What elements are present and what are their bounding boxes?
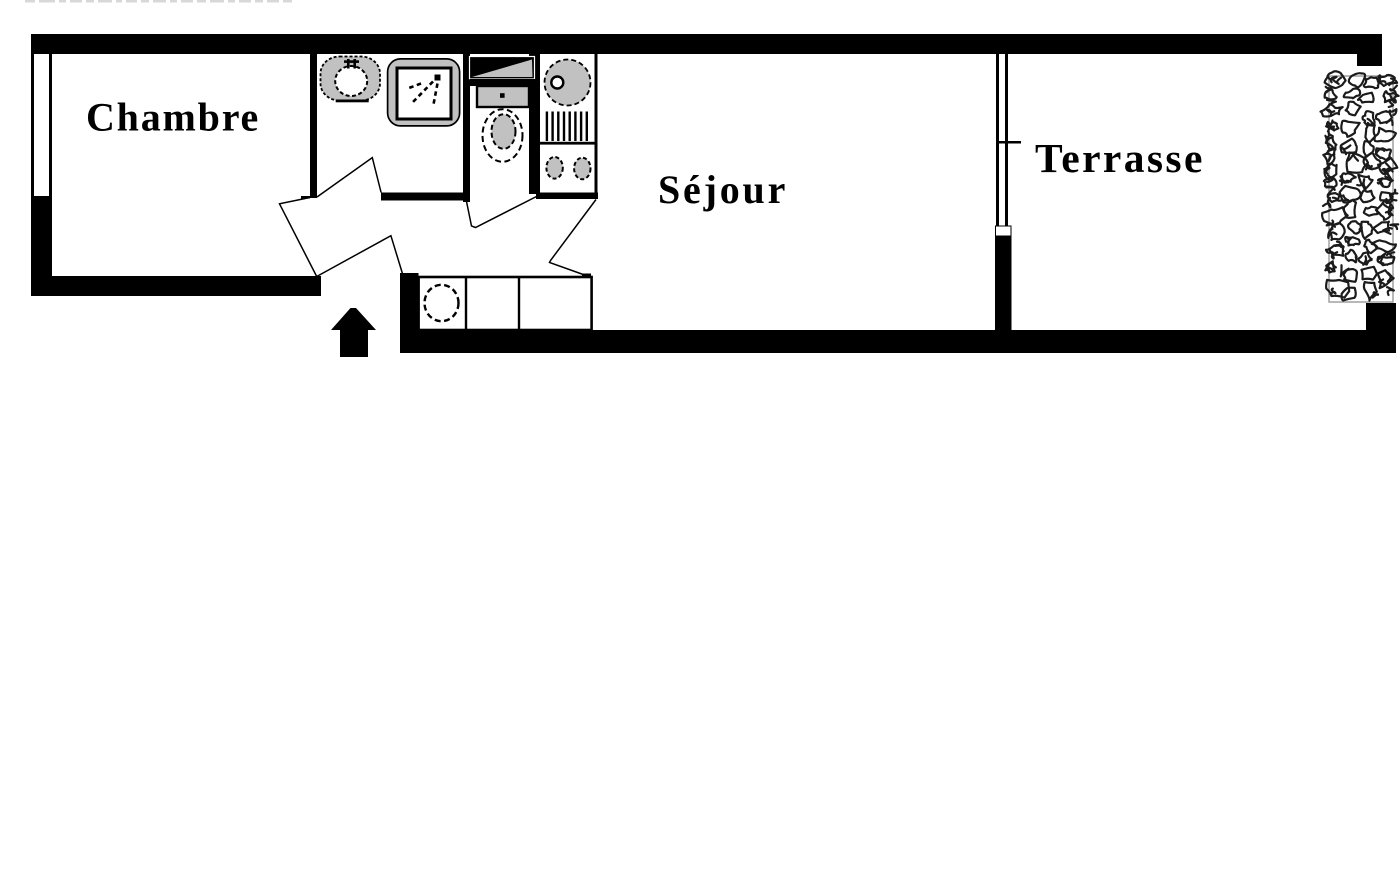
svg-text:Séjour: Séjour	[658, 167, 788, 212]
svg-text:Terrasse: Terrasse	[1035, 135, 1205, 181]
svg-text:Chambre: Chambre	[86, 95, 260, 140]
